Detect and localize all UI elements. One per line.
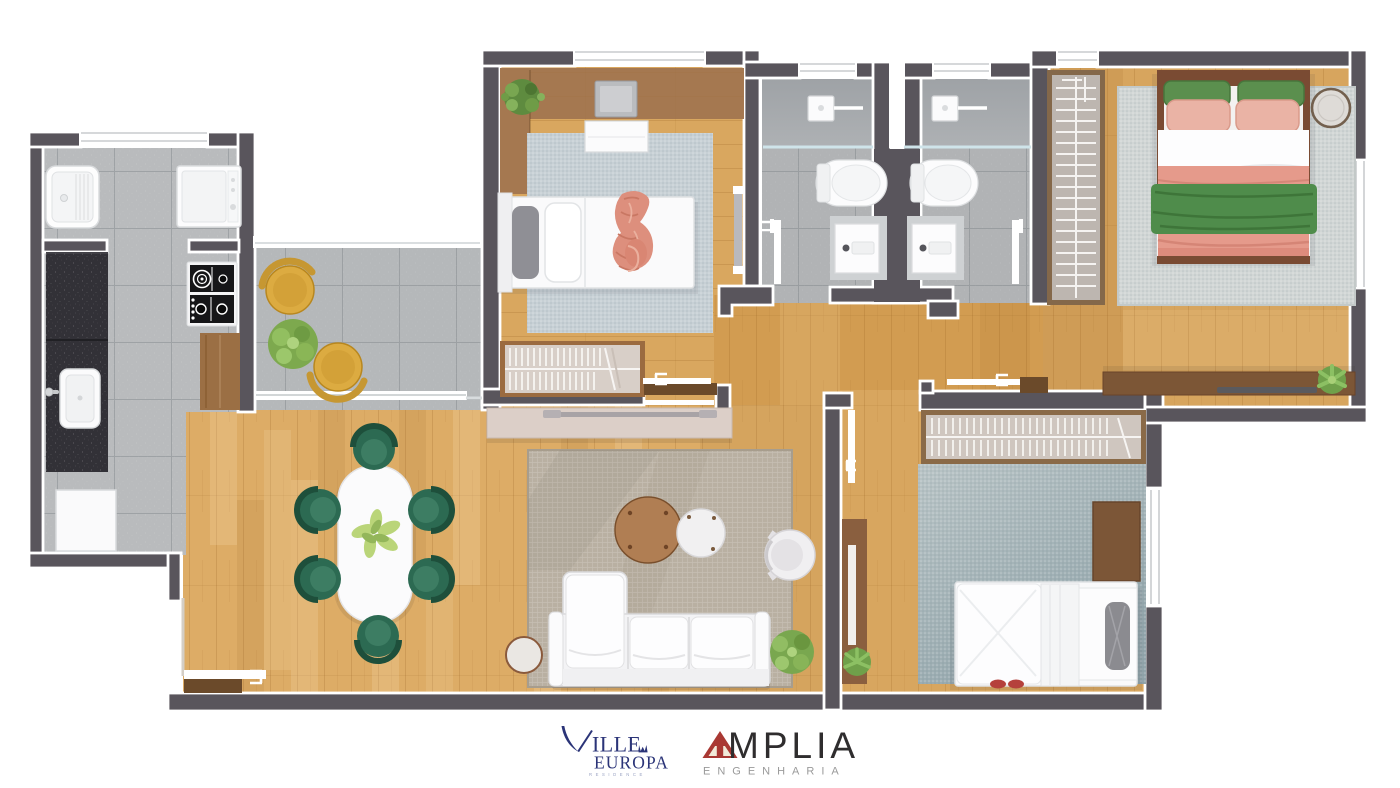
svg-text:EUROPA: EUROPA (594, 753, 669, 773)
svg-text:ENGENHARIA: ENGENHARIA (703, 766, 846, 778)
svg-text:MPLIA: MPLIA (728, 725, 859, 766)
svg-text:RESIDENCE: RESIDENCE (589, 772, 646, 777)
